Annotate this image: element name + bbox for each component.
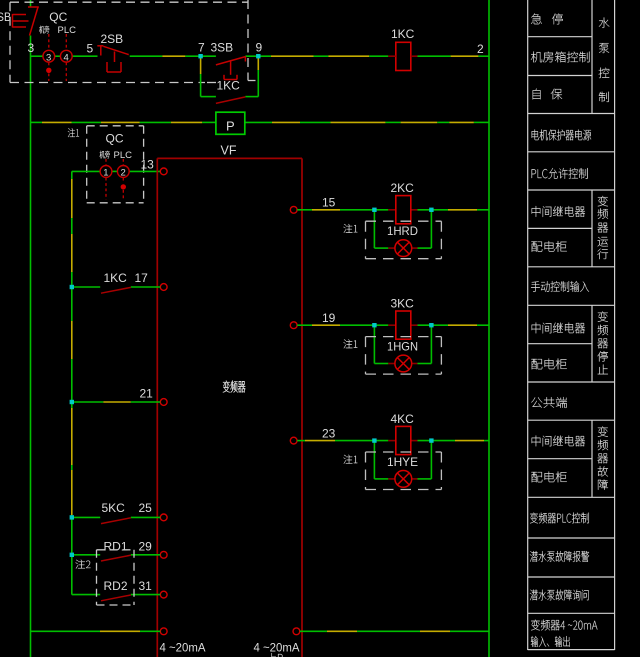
svg-text:15: 15 [322,196,336,210]
svg-text:VF: VF [221,144,237,158]
svg-text:13: 13 [141,158,155,172]
svg-text:1KC: 1KC [391,27,415,41]
svg-text:2: 2 [477,42,484,56]
svg-text:5: 5 [87,42,94,56]
svg-text:QC: QC [49,10,67,24]
svg-text:4KC: 4KC [391,412,415,426]
svg-text:29: 29 [139,539,153,553]
svg-text:17: 17 [135,271,149,285]
svg-text:2KC: 2KC [391,181,415,195]
svg-text:19: 19 [322,311,336,325]
svg-text:RD2: RD2 [104,579,128,593]
svg-text:2SB: 2SB [101,32,124,46]
svg-text:21: 21 [140,387,154,401]
svg-text:3: 3 [46,53,51,64]
svg-text:3KC: 3KC [391,296,415,310]
svg-text:3SB: 3SB [211,41,234,55]
svg-text:4: 4 [64,53,69,64]
svg-text:4 ~20mA: 4 ~20mA [254,643,300,655]
svg-text:9: 9 [256,41,263,55]
svg-text:P: P [226,119,235,134]
svg-text:5KC: 5KC [102,501,126,515]
svg-text:4 ~20mA: 4 ~20mA [160,643,206,655]
svg-text:31: 31 [139,579,153,593]
svg-text:1KC: 1KC [217,79,241,93]
svg-text:1HGN: 1HGN [387,339,418,353]
svg-text:23: 23 [322,426,336,440]
svg-text:QC: QC [106,132,124,146]
svg-text:1: 1 [103,168,108,179]
svg-text:1HYE: 1HYE [387,455,418,469]
svg-text:25: 25 [139,501,153,515]
svg-text:2: 2 [121,168,126,179]
svg-text:7: 7 [198,41,205,55]
svg-text:1HRD: 1HRD [387,224,418,238]
svg-text:RD1: RD1 [104,539,128,553]
svg-text:3: 3 [28,41,35,55]
svg-text:1KC: 1KC [104,271,128,285]
